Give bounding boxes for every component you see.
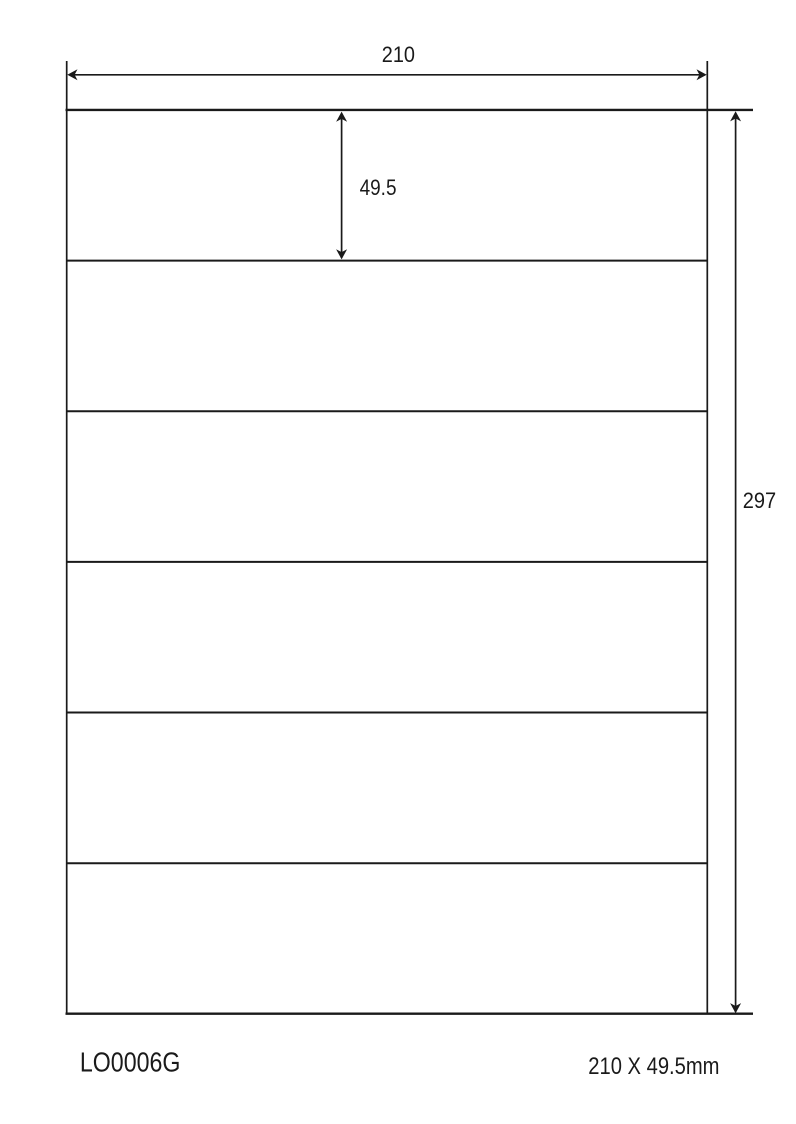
svg-text:297: 297	[743, 488, 776, 513]
svg-text:49.5: 49.5	[360, 175, 397, 200]
svg-text:210 X 49.5mm: 210 X 49.5mm	[588, 1053, 719, 1080]
svg-text:LO0006G: LO0006G	[80, 1047, 180, 1078]
svg-text:210: 210	[382, 42, 415, 67]
